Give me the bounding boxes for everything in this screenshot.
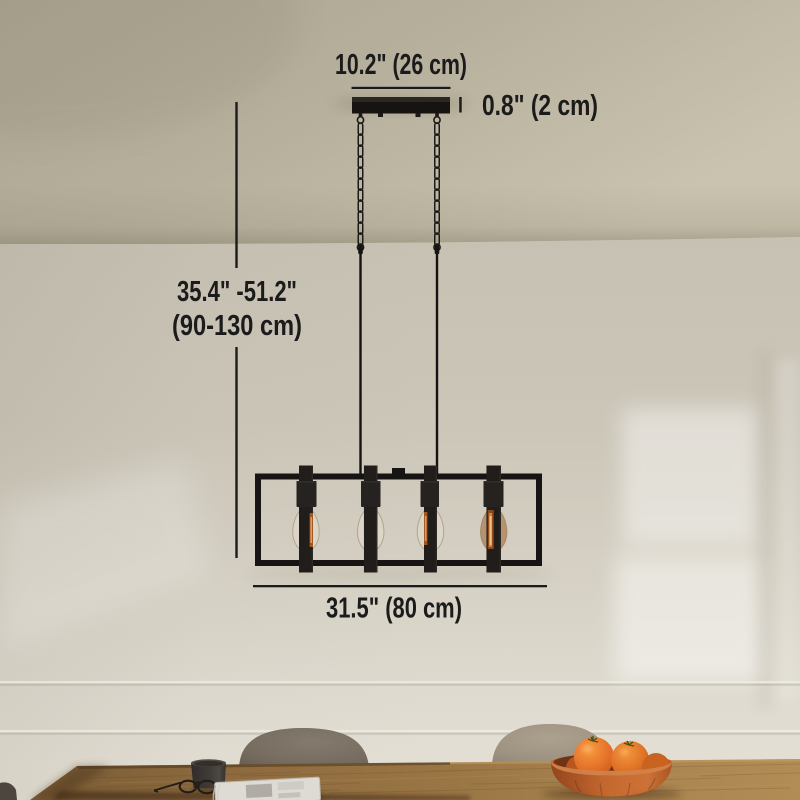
svg-text:10.2" (26 cm): 10.2" (26 cm): [335, 49, 467, 81]
svg-text:(90-130 cm): (90-130 cm): [172, 310, 302, 342]
svg-text:35.4" -51.2": 35.4" -51.2": [177, 276, 297, 308]
svg-text:31.5" (80 cm): 31.5" (80 cm): [326, 592, 462, 624]
svg-text:0.8" (2 cm): 0.8" (2 cm): [482, 90, 598, 122]
